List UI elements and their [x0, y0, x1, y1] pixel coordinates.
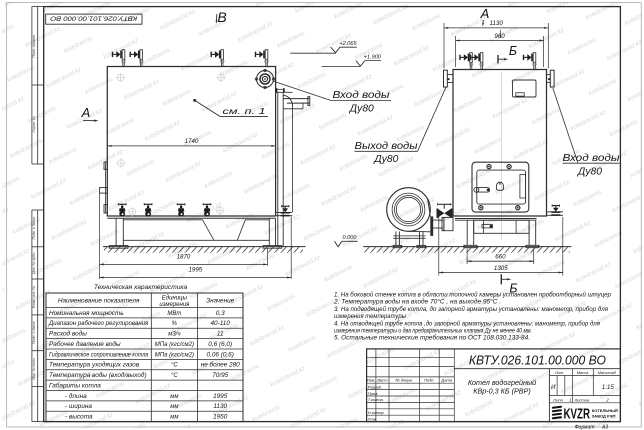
svg-text:Листов: Листов: [574, 397, 590, 402]
svg-text:40-110: 40-110: [210, 320, 230, 327]
svg-text:3. На подводящей трубе котла,: 3. На подводящей трубе котла, до запорно…: [334, 305, 609, 313]
svg-text:+2.065: +2.065: [339, 41, 357, 47]
svg-text:1995: 1995: [213, 393, 228, 400]
svg-text:1950: 1950: [213, 414, 228, 421]
svg-text:Справ. №: Справ. №: [32, 116, 36, 132]
svg-text:70/95: 70/95: [212, 372, 228, 379]
svg-text:+1.900: +1.900: [364, 54, 382, 60]
svg-text:Техническая характеристика: Техническая характеристика: [94, 284, 188, 291]
svg-text:Перв. примен.: Перв. примен.: [32, 34, 36, 58]
svg-text:Пров.: Пров.: [368, 391, 379, 396]
svg-text:мм: мм: [170, 404, 178, 410]
svg-text:- высота: - высота: [65, 414, 93, 421]
svg-text:Дата: Дата: [440, 378, 452, 383]
svg-text:Масса: Масса: [577, 370, 589, 375]
svg-text:А: А: [480, 6, 490, 21]
svg-text:1130: 1130: [213, 403, 227, 410]
svg-text:0.000: 0.000: [343, 235, 358, 241]
svg-text:Ду80: Ду80: [577, 166, 602, 177]
svg-text:Т.контр.: Т.контр.: [368, 397, 384, 402]
svg-text:4. На отводящей трубе котла ,: 4. На отводящей трубе котла ,до запорной…: [334, 319, 601, 327]
svg-text:°С: °С: [171, 363, 178, 369]
svg-text:А3: А3: [601, 424, 608, 430]
svg-text:%: %: [172, 321, 178, 327]
svg-text:Лист: Лист: [552, 397, 564, 402]
svg-text:см. п. 1: см. п. 1: [223, 106, 266, 116]
svg-text:Выход воды: Выход воды: [355, 141, 419, 152]
svg-text:Утв.: Утв.: [368, 416, 377, 421]
svg-text:Разраб.: Разраб.: [368, 384, 382, 389]
svg-text:№ докум.: № докум.: [395, 378, 413, 383]
svg-text:Номинальная мощность: Номинальная мощность: [49, 310, 124, 317]
svg-text:измерения температуры: измерения температуры: [334, 313, 406, 320]
svg-text:1740: 1740: [185, 138, 199, 145]
svg-text:МПа (кгс/см2): МПа (кгс/см2): [155, 342, 194, 348]
svg-text:Лист: Лист: [376, 378, 388, 383]
svg-text:660: 660: [495, 254, 506, 261]
svg-text:Масштаб: Масштаб: [598, 370, 617, 375]
svg-text:измерения: измерения: [159, 302, 190, 308]
svg-text:измерения температуры и два пр: измерения температуры и два предохраните…: [334, 327, 532, 335]
svg-text:МВт: МВт: [167, 311, 181, 317]
svg-text:не более 280: не более 280: [201, 361, 240, 369]
svg-text:1305: 1305: [494, 265, 508, 272]
svg-text:Расход воды: Расход воды: [49, 330, 87, 338]
svg-text:Лит.: Лит.: [554, 370, 564, 375]
svg-text:Подп. и дата: Подп. и дата: [32, 322, 36, 345]
svg-text:Формат: Формат: [575, 424, 595, 430]
svg-text:Б: Б: [509, 44, 517, 58]
svg-text:Температура уходящих газов: Температура уходящих газов: [49, 361, 140, 369]
svg-text:Диапазон рабочего регулировани: Диапазон рабочего регулирования: [48, 319, 149, 327]
svg-text:В: В: [217, 9, 226, 25]
svg-text:мм: мм: [170, 415, 178, 421]
svg-text:А: А: [81, 105, 91, 120]
svg-text:1:15: 1:15: [602, 384, 615, 391]
svg-text:Инв. № подл.: Инв. № подл.: [32, 357, 36, 379]
svg-text:Наименование показателя: Наименование показателя: [58, 298, 140, 305]
svg-text:0,6 (6,0): 0,6 (6,0): [208, 341, 232, 348]
svg-text:Гидравлическое сопротивление к: Гидравлическое сопротивление котла: [49, 350, 149, 358]
svg-text:1. На боковой стенке котла в: 1. На боковой стенке котла в области топ…: [334, 291, 611, 299]
svg-text:Инв. № дубл.: Инв. № дубл.: [32, 252, 36, 274]
svg-text:0,3: 0,3: [216, 310, 225, 317]
svg-text:Рабочее давление воды: Рабочее давление воды: [49, 340, 121, 348]
svg-text:0,06 (0,6): 0,06 (0,6): [207, 351, 234, 358]
svg-text:5. Остальные технические треб: 5. Остальные технические требования по О…: [334, 334, 530, 342]
svg-text:Подп. и дата: Подп. и дата: [32, 217, 36, 240]
svg-text:KVZR: KVZR: [564, 406, 591, 423]
svg-text:Габариты котла: Габариты котла: [49, 381, 101, 389]
svg-text:Единицы: Единицы: [162, 296, 188, 302]
svg-text:2. Температура воды на входе: 2. Температура воды на входе 70°С , на в…: [333, 298, 501, 306]
svg-text:Вход воды: Вход воды: [333, 90, 391, 101]
svg-text:960: 960: [494, 33, 505, 40]
svg-text:Изм.: Изм.: [367, 378, 376, 383]
svg-text:Подп.: Подп.: [424, 378, 435, 383]
svg-text:МПа (кгс/см2): МПа (кгс/см2): [155, 352, 194, 358]
svg-text:И: И: [551, 384, 556, 391]
svg-text:Ду80: Ду80: [373, 154, 398, 165]
svg-text:1: 1: [569, 397, 571, 402]
svg-text:Значение: Значение: [206, 298, 234, 305]
svg-text:Температура воды (вход/выход): Температура воды (вход/выход): [49, 371, 147, 379]
svg-text:Взам. инв. №: Взам. инв. №: [32, 286, 36, 308]
svg-text:- ширина: - ширина: [65, 403, 92, 410]
svg-text:1130: 1130: [489, 20, 503, 27]
svg-text:м3/ч: м3/ч: [168, 332, 180, 338]
svg-text:Ду80: Ду80: [349, 104, 374, 115]
svg-text:11: 11: [217, 331, 224, 338]
svg-text:- длина: - длина: [65, 392, 87, 400]
svg-text:ЗАВОД РЭП: ЗАВОД РЭП: [592, 413, 616, 418]
svg-text:Н.контр.: Н.контр.: [368, 410, 385, 415]
svg-text:°С: °С: [171, 373, 178, 379]
svg-text:мм: мм: [170, 394, 178, 400]
svg-text:Вход воды: Вход воды: [563, 153, 621, 164]
svg-text:КВТУ.026.101.00.000 ВО: КВТУ.026.101.00.000 ВО: [50, 15, 137, 22]
svg-text:КВТУ.026.101.00.000 ВО: КВТУ.026.101.00.000 ВО: [469, 353, 606, 368]
svg-text:1995: 1995: [188, 266, 202, 273]
svg-text:1870: 1870: [177, 253, 191, 260]
svg-text:КВр-0,3 КБ (РВР): КВр-0,3 КБ (РВР): [473, 387, 531, 396]
